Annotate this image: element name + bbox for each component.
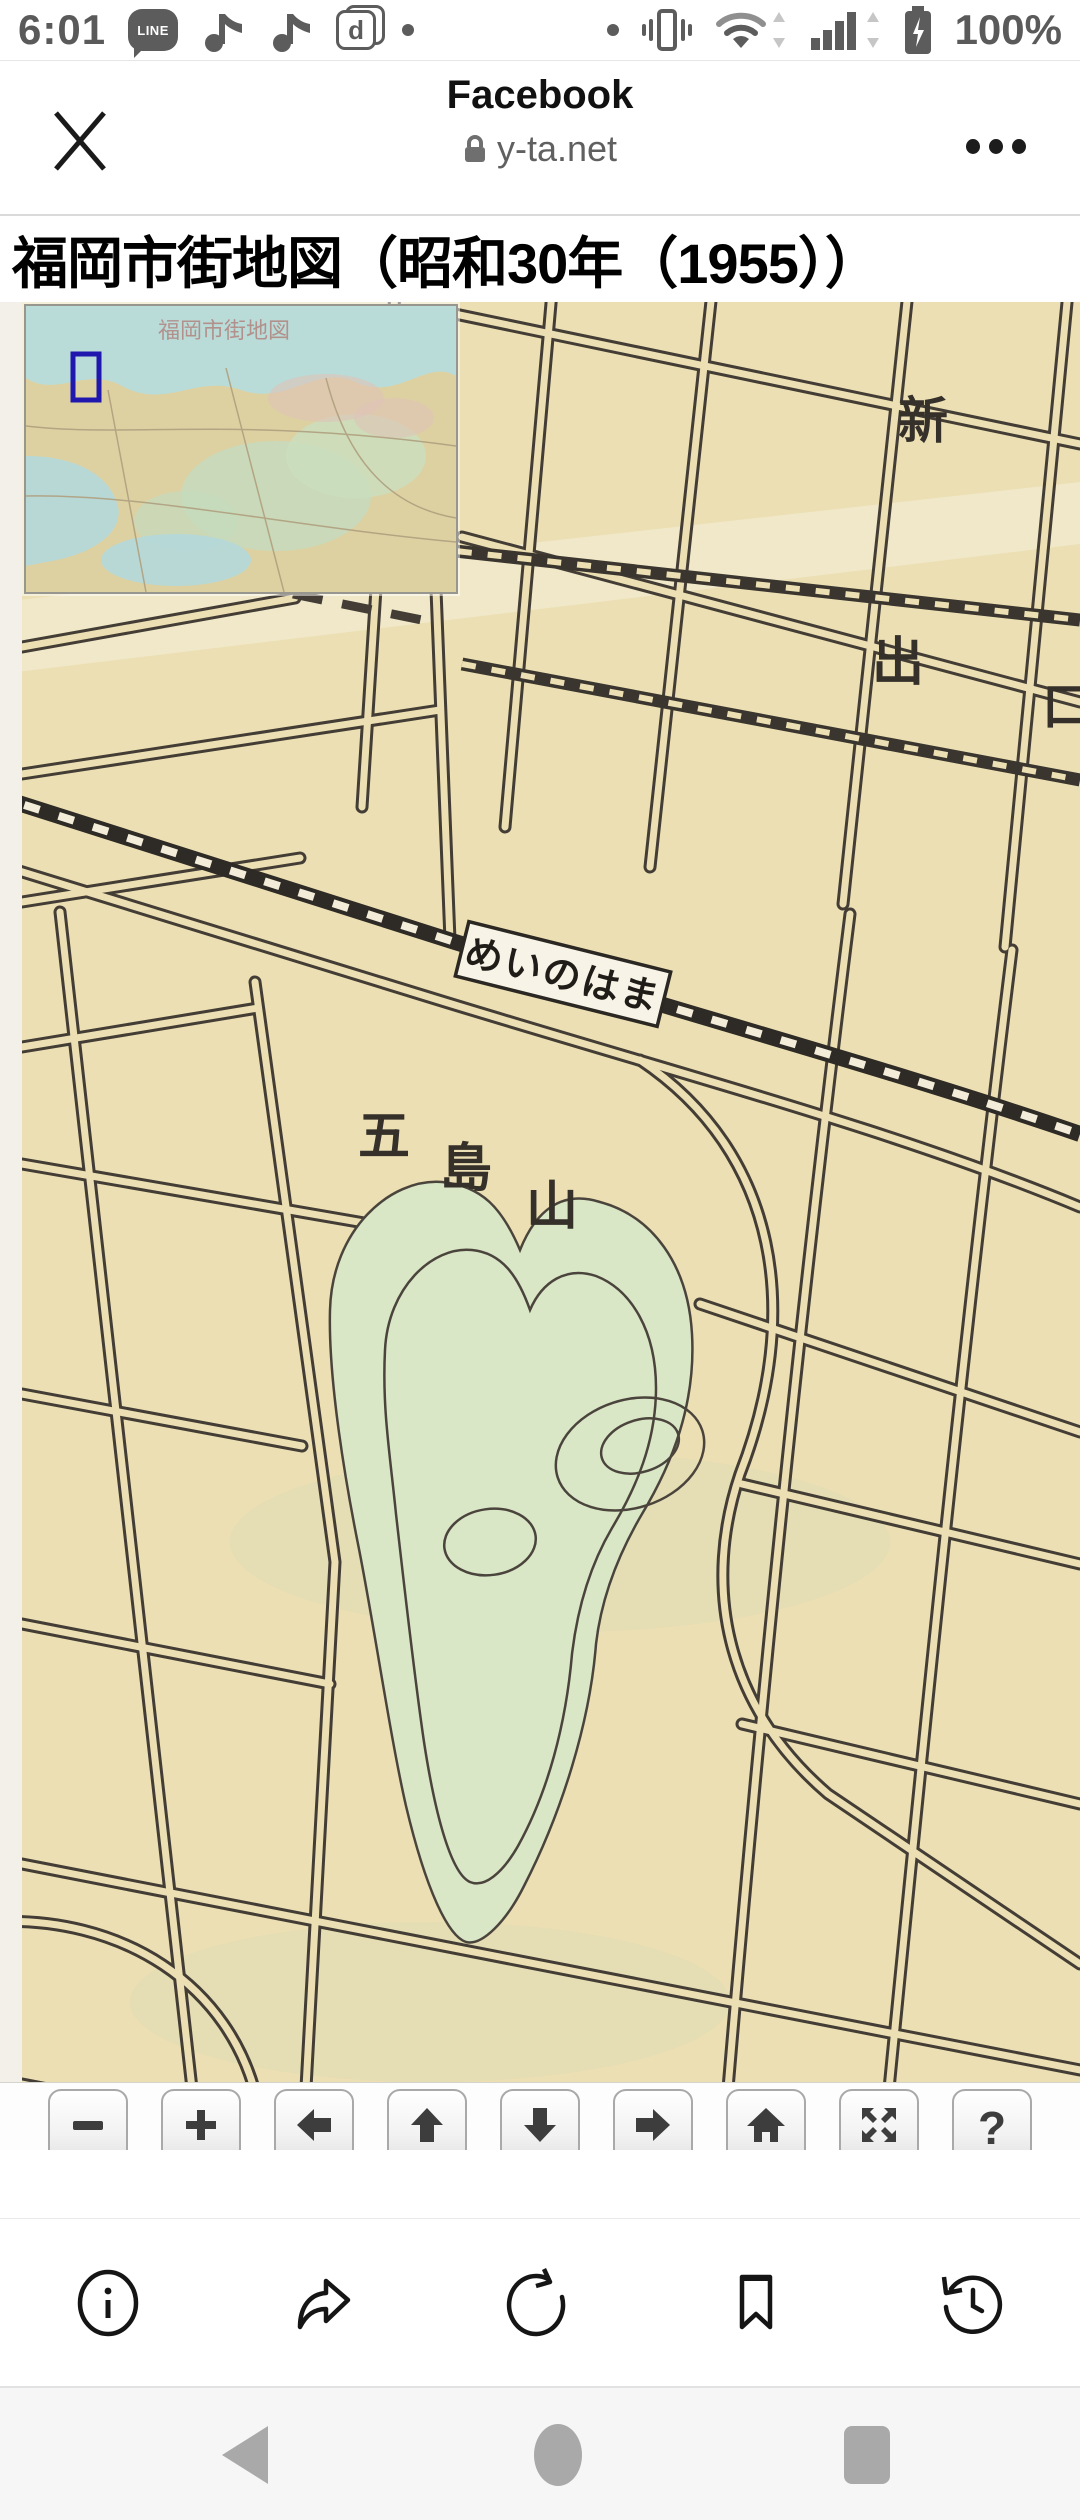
back-button[interactable]: [222, 2426, 268, 2484]
bookmark-button[interactable]: [716, 2263, 796, 2343]
svg-text:新: 新: [898, 393, 948, 449]
status-bar: 6:01 LINE d: [0, 0, 1080, 60]
clock: 6:01: [18, 6, 106, 54]
wifi-icon: [715, 8, 767, 52]
svg-text:口: 口: [1042, 679, 1080, 735]
phone-screen: 6:01 LINE d: [0, 0, 1080, 2520]
wifi-traffic-arrows: [771, 10, 787, 50]
share-button[interactable]: [284, 2263, 364, 2343]
recents-button[interactable]: [844, 2426, 890, 2484]
url-bar[interactable]: y-ta.net: [0, 128, 1080, 170]
data-traffic-arrows: [865, 10, 881, 50]
plus-icon: [179, 2103, 223, 2147]
more-options-icon: [966, 139, 980, 154]
article-title: 福岡市街地図（昭和30年（1955））: [0, 219, 880, 300]
inset-title: 福岡市街地図: [158, 318, 290, 343]
question-mark-icon: ?: [978, 2105, 1006, 2150]
browser-header: Facebook y-ta.net: [0, 60, 1080, 216]
svg-text:五: 五: [358, 1108, 410, 1166]
home-icon: [744, 2103, 788, 2147]
tiktok-notification-icon: [200, 6, 246, 54]
pan-down-button[interactable]: [500, 2089, 580, 2150]
more-options-button[interactable]: [956, 129, 1036, 164]
lock-icon: [463, 134, 487, 164]
history-button[interactable]: [932, 2263, 1012, 2343]
zoom-in-button[interactable]: [161, 2089, 241, 2150]
android-nav-bar: [0, 2386, 1080, 2520]
arrow-left-icon: [292, 2103, 336, 2147]
page-title: Facebook: [0, 73, 1080, 118]
url-text: y-ta.net: [497, 128, 617, 170]
overview-inset-map[interactable]: 福岡市街地図: [24, 304, 458, 594]
home-button[interactable]: [534, 2424, 582, 2486]
map-controls: ?: [0, 2082, 1080, 2150]
notification-overflow-dot: [402, 24, 414, 36]
battery-percentage: 100%: [955, 6, 1062, 54]
notification-overflow-dot: [607, 24, 619, 36]
svg-text:島: 島: [440, 1140, 492, 1198]
d-menu-notification-icon: d: [336, 8, 380, 52]
cell-signal-icon: [809, 8, 861, 52]
zoom-out-button[interactable]: [48, 2089, 128, 2150]
arrow-down-icon: [518, 2103, 562, 2147]
pan-left-button[interactable]: [274, 2089, 354, 2150]
help-button[interactable]: ?: [952, 2089, 1032, 2150]
arrow-up-icon: [405, 2103, 449, 2147]
fullscreen-button[interactable]: [839, 2089, 919, 2150]
pan-up-button[interactable]: [387, 2089, 467, 2150]
home-view-button[interactable]: [726, 2089, 806, 2150]
arrow-right-icon: [631, 2103, 675, 2147]
tiktok-notification-icon: [268, 6, 314, 54]
fullscreen-icon: [857, 2103, 901, 2147]
battery-charging-icon: [903, 5, 933, 55]
svg-text:出: 出: [872, 634, 924, 692]
article-title-row: 福岡市街地図（昭和30年（1955））: [0, 216, 1080, 302]
vibrate-mode-icon: [641, 7, 693, 53]
browser-toolbar: [0, 2218, 1080, 2386]
svg-text:山: 山: [526, 1178, 578, 1236]
reload-button[interactable]: [500, 2263, 580, 2343]
page-info-button[interactable]: [68, 2263, 148, 2343]
map-viewer[interactable]: めいのはま 新 出 口 五 島 山: [0, 302, 1080, 2150]
scan-margin: [0, 302, 22, 2150]
line-app-icon: LINE: [128, 9, 178, 51]
minus-icon: [66, 2103, 110, 2147]
pan-right-button[interactable]: [613, 2089, 693, 2150]
